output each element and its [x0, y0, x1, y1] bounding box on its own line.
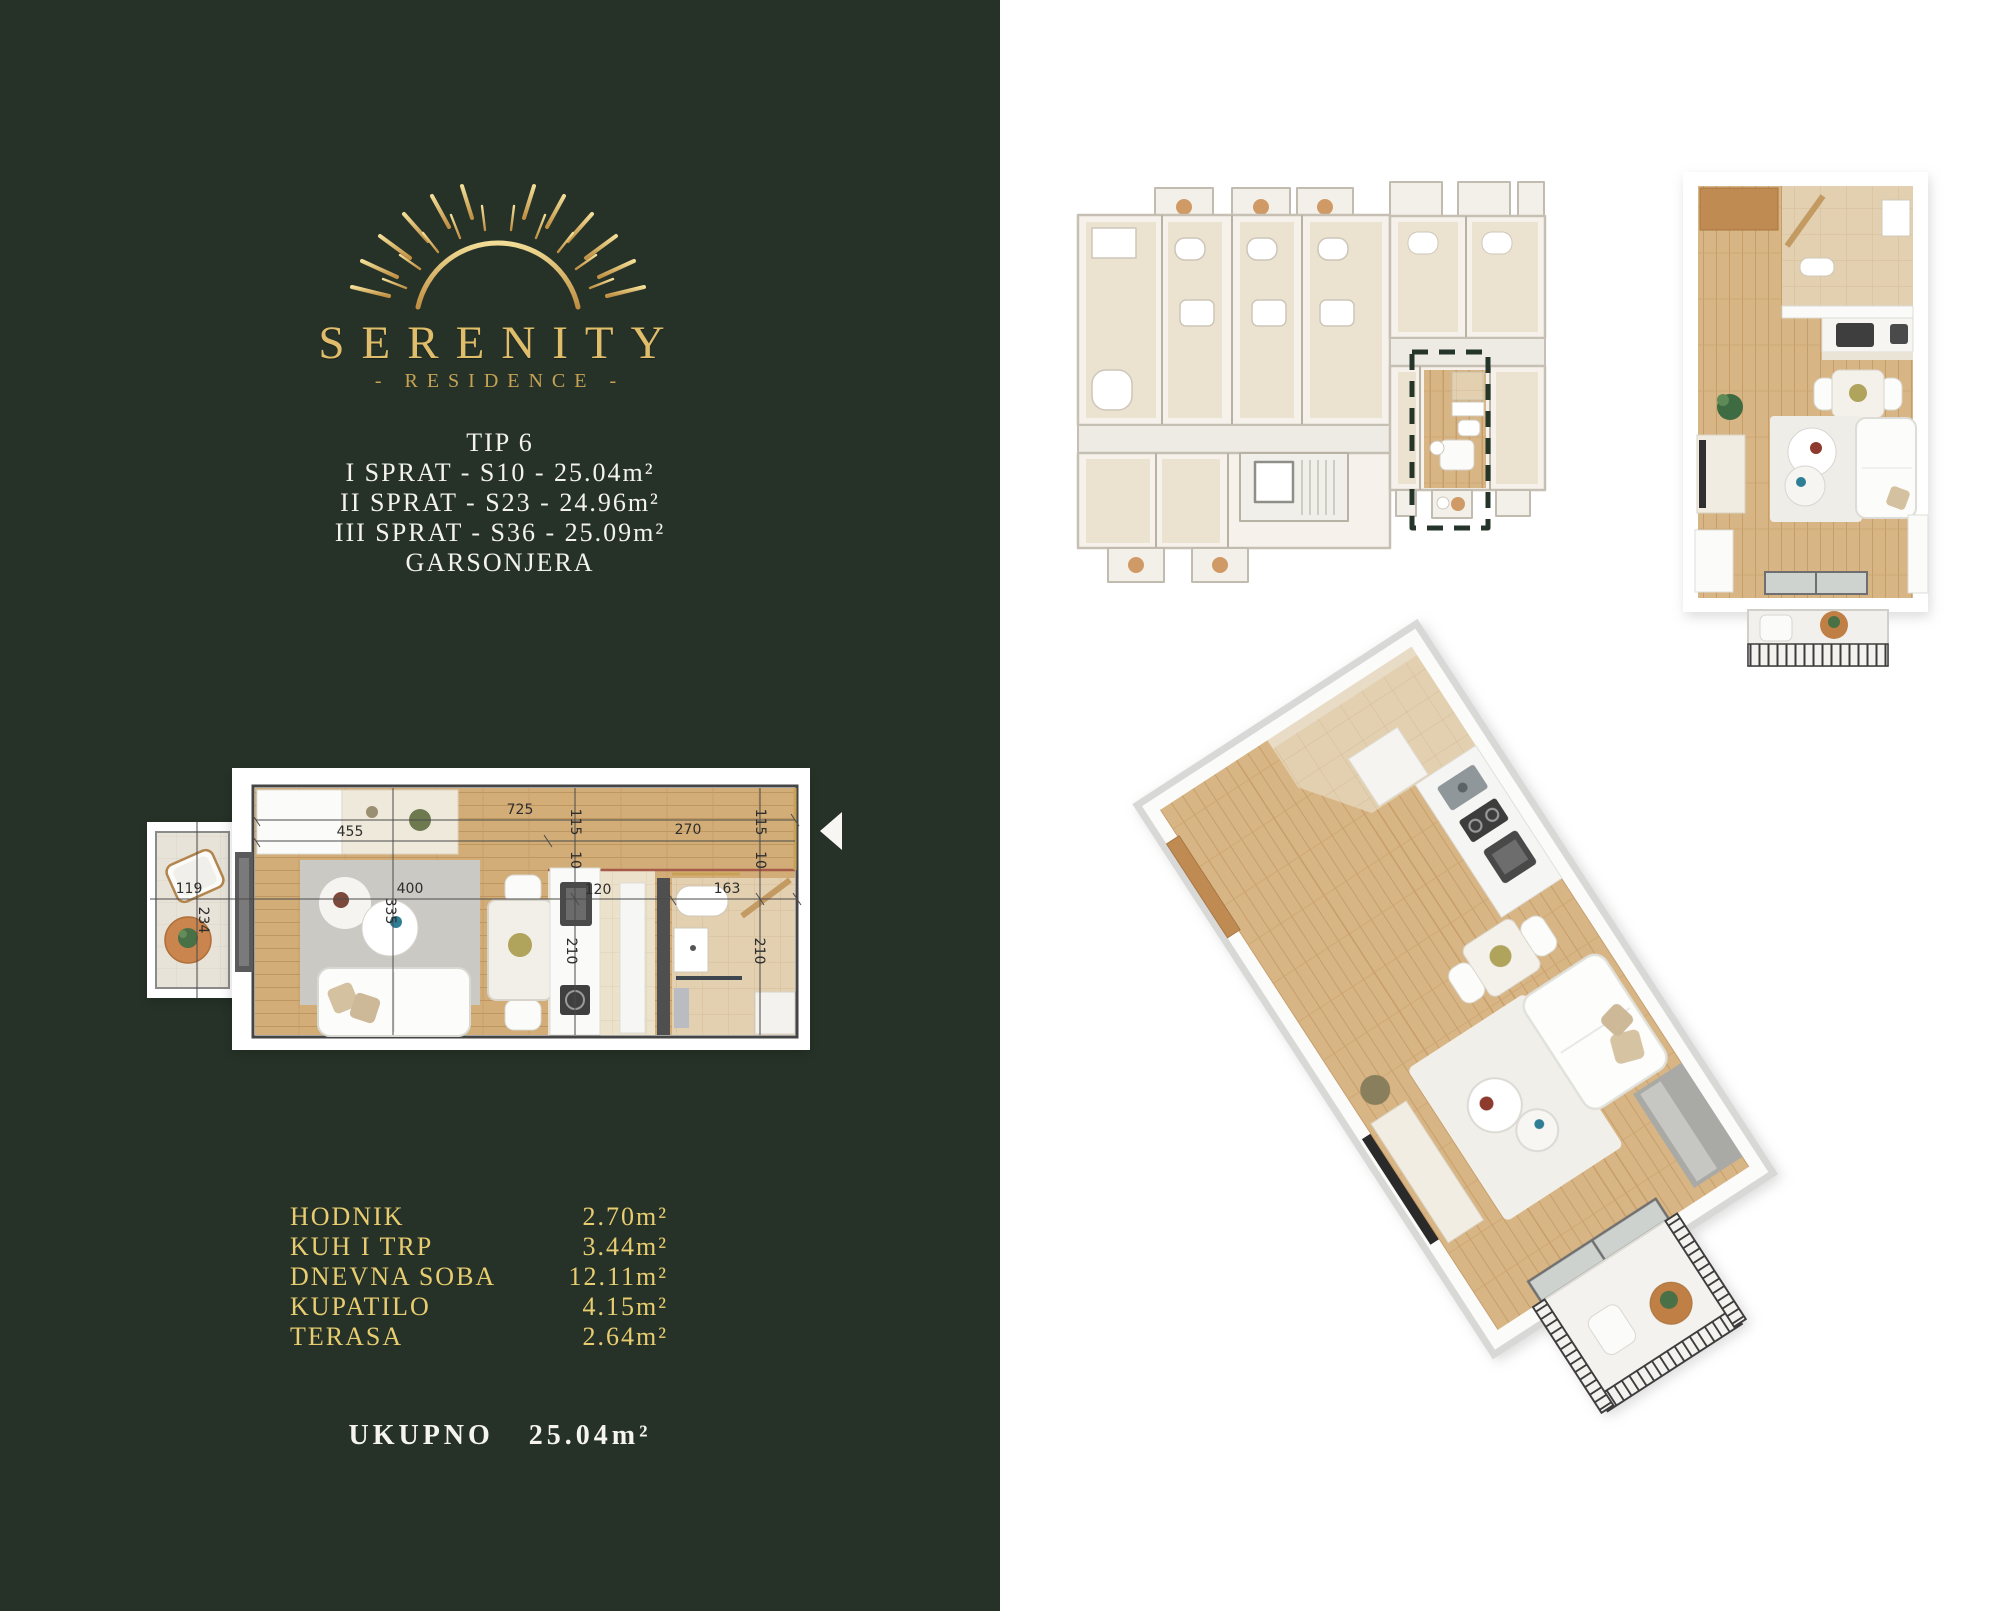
- chair: [1760, 615, 1792, 641]
- unit-balcony: [1748, 610, 1888, 666]
- dim-label: 210: [751, 938, 767, 965]
- dim-label: 163: [714, 881, 741, 897]
- dim-label: 455: [337, 824, 364, 840]
- dim-label: 234: [195, 907, 211, 934]
- room-name: DNEVNA SOBA: [290, 1262, 496, 1292]
- coffee-table: [1785, 466, 1825, 506]
- unit-topdown-plan: [1683, 172, 1928, 666]
- dim-label: 335: [382, 898, 398, 925]
- cabinet: [257, 790, 342, 854]
- brand-subtitle: - RESIDENCE -: [0, 370, 1000, 393]
- room-name: HODNIK: [290, 1202, 405, 1232]
- dim-label: 725: [507, 802, 534, 818]
- toilet: [1882, 200, 1910, 236]
- room-area: 2.70m²: [582, 1202, 668, 1232]
- elevator: [1255, 462, 1293, 502]
- page-graphics: 725 455 270 115 115 10 10 120 163 210 21…: [0, 0, 2000, 1611]
- unit-floor-line: III SPRAT - S36 - 25.09m²: [0, 518, 1000, 548]
- room-name: KUPATILO: [290, 1292, 431, 1322]
- corridor: [1078, 425, 1390, 453]
- total-row: UKUPNO 25.04m²: [0, 1420, 1000, 1452]
- room-name: TERASA: [290, 1322, 403, 1352]
- dim-label: 10: [567, 851, 583, 869]
- brand-name: SERENITY: [0, 316, 1000, 370]
- dim-label: 400: [397, 881, 424, 897]
- dim-label: 270: [675, 822, 702, 838]
- balcony: [1518, 182, 1544, 216]
- sofa: [318, 968, 470, 1036]
- sink: [1800, 258, 1834, 276]
- total-label: UKUPNO: [348, 1420, 493, 1451]
- kitchen: [1822, 318, 1913, 360]
- kitchen-counter: [620, 883, 645, 1033]
- dim-label: 115: [567, 809, 583, 836]
- table-row: KUPATILO 4.15m²: [290, 1292, 668, 1322]
- table-row: DNEVNA SOBA 12.11m²: [290, 1262, 668, 1292]
- room-area: 3.44m²: [582, 1232, 668, 1262]
- total-area: 25.04m²: [529, 1420, 652, 1451]
- counter-marble: [342, 790, 458, 854]
- room-area-table: HODNIK 2.70m² KUH I TRP 3.44m² DNEVNA SO…: [290, 1202, 668, 1352]
- sofa: [1856, 418, 1916, 518]
- dim-label: 115: [752, 809, 768, 836]
- table-row: TERASA 2.64m²: [290, 1322, 668, 1352]
- unit-type: TIP 6: [0, 428, 1000, 458]
- dim-label: 119: [176, 881, 203, 897]
- room-area: 2.64m²: [582, 1322, 668, 1352]
- dim-label: 120: [585, 882, 612, 898]
- building-floorplan: [1078, 182, 1545, 582]
- unit-floor-line: II SPRAT - S23 - 24.96m²: [0, 488, 1000, 518]
- unit-info: TIP 6 I SPRAT - S10 - 25.04m² II SPRAT -…: [0, 428, 1000, 578]
- dim-label: 10: [752, 851, 768, 869]
- balcony: [1390, 182, 1442, 216]
- brochure-page: 725 455 270 115 115 10 10 120 163 210 21…: [0, 0, 2000, 1611]
- highlighted-unit: [1424, 370, 1486, 488]
- unit-category: GARSONJERA: [0, 548, 1000, 578]
- floorplan-terrace: [147, 822, 239, 998]
- stair-core: [1240, 453, 1348, 521]
- dim-label: 210: [563, 938, 579, 965]
- balcony: [1458, 182, 1510, 216]
- entry-door: [1700, 188, 1778, 230]
- table-row: KUH I TRP 3.44m²: [290, 1232, 668, 1262]
- unit-floor-line: I SPRAT - S10 - 25.04m²: [0, 458, 1000, 488]
- room-name: KUH I TRP: [290, 1232, 433, 1262]
- radiator: [674, 988, 689, 1028]
- floorplan-2d: 725 455 270 115 115 10 10 120 163 210 21…: [147, 768, 842, 1050]
- wall-partition: [657, 878, 670, 1035]
- room-area: 12.11m²: [568, 1262, 668, 1292]
- balcony: [1496, 490, 1530, 516]
- shower-tray: [755, 992, 795, 1034]
- bed: [1092, 228, 1136, 258]
- tv: [1699, 440, 1706, 508]
- isometric-render: [1132, 619, 1835, 1448]
- table-row: HODNIK 2.70m²: [290, 1202, 668, 1232]
- room-area: 4.15m²: [582, 1292, 668, 1322]
